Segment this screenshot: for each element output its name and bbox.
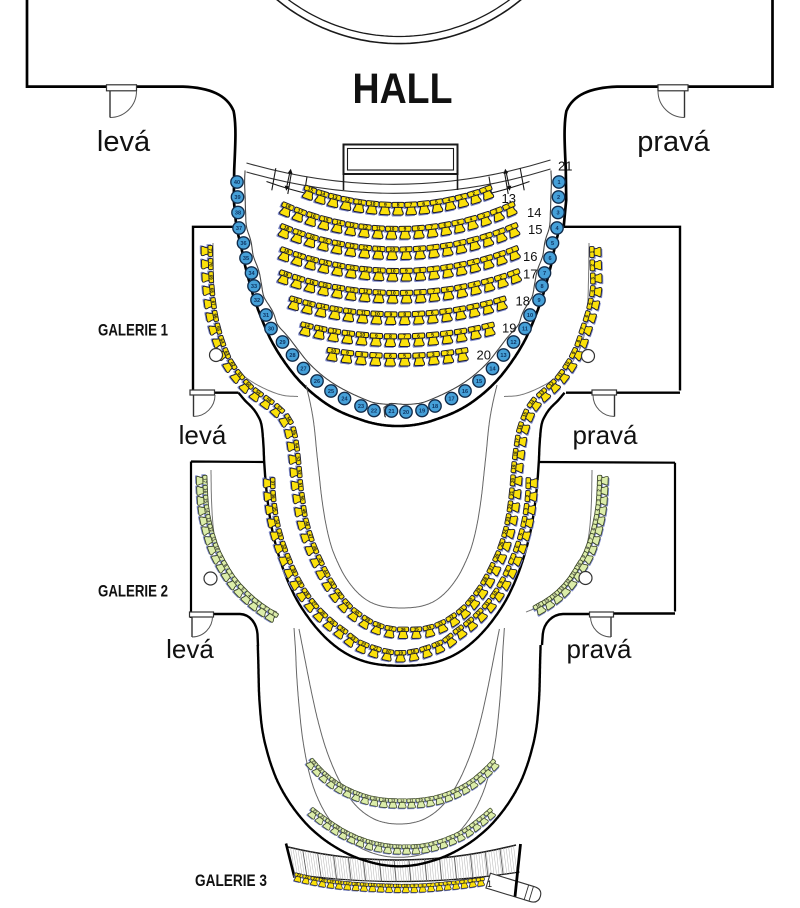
svg-text:70: 70 [208, 261, 213, 267]
svg-text:17: 17 [523, 267, 537, 282]
svg-text:levá: levá [97, 126, 151, 158]
svg-text:39: 39 [234, 195, 240, 201]
svg-text:13: 13 [349, 287, 356, 294]
svg-text:15: 15 [203, 498, 208, 504]
svg-text:19: 19 [398, 650, 404, 655]
svg-text:11: 11 [376, 290, 382, 296]
svg-text:31: 31 [263, 313, 269, 319]
svg-text:22: 22 [371, 409, 377, 415]
svg-text:11: 11 [376, 246, 382, 252]
svg-text:13: 13 [349, 265, 356, 272]
svg-text:25: 25 [328, 389, 334, 395]
svg-text:GALERIE 3: GALERIE 3 [195, 872, 267, 890]
svg-text:18: 18 [337, 880, 342, 884]
svg-text:11: 11 [345, 331, 351, 338]
svg-text:26: 26 [314, 379, 320, 385]
svg-text:12: 12 [400, 798, 405, 803]
svg-text:10: 10 [359, 332, 365, 338]
svg-text:20: 20 [321, 878, 326, 883]
svg-text:19: 19 [502, 321, 516, 336]
svg-text:20: 20 [510, 477, 515, 483]
svg-text:pravá: pravá [637, 126, 710, 158]
svg-text:52: 52 [297, 469, 302, 475]
svg-text:2: 2 [557, 195, 560, 201]
svg-text:1: 1 [487, 879, 492, 889]
svg-text:6: 6 [417, 333, 420, 339]
svg-text:7: 7 [409, 202, 412, 208]
svg-text:14: 14 [527, 205, 541, 220]
svg-text:7: 7 [403, 334, 406, 340]
svg-text:16: 16 [462, 389, 468, 395]
svg-text:5: 5 [403, 353, 406, 359]
svg-text:9: 9 [404, 247, 407, 253]
svg-text:8: 8 [397, 203, 400, 209]
svg-text:23: 23 [358, 404, 364, 410]
svg-text:12: 12 [387, 884, 391, 888]
svg-text:21: 21 [558, 159, 572, 174]
svg-text:levá: levá [179, 420, 227, 450]
svg-text:9: 9 [404, 226, 407, 232]
svg-text:1: 1 [557, 180, 560, 186]
svg-text:16: 16 [203, 488, 208, 494]
svg-text:10: 10 [390, 247, 396, 253]
svg-text:7: 7 [430, 883, 432, 887]
svg-text:37: 37 [236, 226, 242, 232]
svg-text:18: 18 [432, 404, 438, 410]
svg-text:pravá: pravá [572, 420, 638, 450]
svg-text:4: 4 [417, 353, 420, 359]
svg-text:34: 34 [248, 271, 255, 277]
svg-text:9: 9 [405, 268, 408, 274]
svg-text:9: 9 [537, 298, 540, 304]
svg-text:16: 16 [354, 882, 359, 886]
svg-text:24: 24 [341, 397, 348, 403]
svg-text:28: 28 [289, 353, 295, 359]
svg-text:10: 10 [390, 269, 396, 275]
svg-text:69: 69 [209, 275, 214, 281]
svg-text:36: 36 [240, 241, 246, 247]
svg-text:11: 11 [522, 327, 528, 333]
svg-text:7: 7 [543, 271, 546, 277]
svg-text:9: 9 [389, 312, 392, 318]
svg-text:12: 12 [362, 245, 368, 252]
svg-text:20: 20 [403, 410, 409, 416]
svg-text:10: 10 [369, 201, 375, 208]
svg-text:35: 35 [243, 256, 249, 262]
svg-text:pravá: pravá [566, 634, 632, 664]
svg-text:10: 10 [404, 884, 408, 888]
svg-text:17: 17 [202, 478, 207, 484]
svg-text:36: 36 [271, 493, 276, 499]
svg-text:10: 10 [374, 311, 380, 317]
svg-text:HALL: HALL [353, 65, 453, 113]
svg-text:12: 12 [346, 308, 353, 315]
svg-text:15: 15 [528, 222, 542, 237]
svg-text:13: 13 [379, 883, 383, 887]
svg-text:32: 32 [254, 298, 260, 304]
svg-text:12: 12 [510, 340, 516, 346]
svg-text:15: 15 [476, 379, 482, 385]
svg-text:11: 11 [375, 226, 381, 232]
svg-text:13: 13 [500, 353, 506, 359]
svg-text:8: 8 [403, 312, 406, 318]
svg-text:10: 10 [389, 226, 395, 232]
svg-text:8: 8 [540, 284, 543, 290]
svg-text:8: 8 [421, 883, 423, 887]
svg-text:40: 40 [234, 180, 240, 186]
svg-text:38: 38 [235, 211, 241, 217]
svg-text:12: 12 [362, 224, 368, 231]
svg-text:14: 14 [489, 367, 496, 373]
svg-text:17: 17 [346, 881, 351, 885]
svg-text:36: 36 [401, 627, 407, 632]
svg-text:9: 9 [413, 884, 415, 888]
svg-text:10: 10 [390, 291, 396, 297]
svg-text:6: 6 [389, 353, 392, 359]
svg-text:16: 16 [523, 249, 537, 264]
svg-text:9: 9 [375, 333, 378, 339]
svg-text:33: 33 [251, 284, 257, 290]
svg-text:levá: levá [166, 634, 214, 664]
svg-text:20: 20 [477, 348, 491, 363]
svg-text:35: 35 [414, 627, 420, 632]
svg-text:8: 8 [389, 334, 392, 340]
svg-text:11: 11 [360, 310, 366, 316]
svg-text:11: 11 [376, 268, 382, 274]
svg-text:19: 19 [329, 879, 334, 883]
svg-text:6: 6 [548, 256, 551, 262]
svg-text:3: 3 [556, 211, 559, 217]
svg-text:27: 27 [300, 367, 306, 373]
svg-text:6: 6 [438, 882, 440, 886]
svg-text:71: 71 [208, 248, 213, 254]
svg-text:GALERIE 2: GALERIE 2 [98, 583, 168, 601]
svg-text:9: 9 [405, 290, 408, 296]
svg-text:10: 10 [527, 313, 533, 319]
svg-text:19: 19 [419, 409, 425, 415]
svg-text:7: 7 [374, 353, 377, 359]
svg-text:7: 7 [417, 311, 420, 317]
svg-text:9: 9 [384, 202, 387, 208]
svg-text:12: 12 [362, 289, 368, 295]
svg-text:12: 12 [363, 267, 369, 274]
svg-text:GALERIE 1: GALERIE 1 [98, 322, 168, 340]
svg-text:29: 29 [279, 340, 285, 346]
svg-text:5: 5 [551, 241, 554, 247]
svg-text:18: 18 [516, 294, 530, 309]
svg-text:17: 17 [448, 397, 454, 403]
svg-text:37: 37 [270, 481, 275, 487]
svg-text:30: 30 [268, 327, 274, 333]
svg-text:21: 21 [388, 409, 394, 415]
svg-text:68: 68 [209, 287, 214, 293]
